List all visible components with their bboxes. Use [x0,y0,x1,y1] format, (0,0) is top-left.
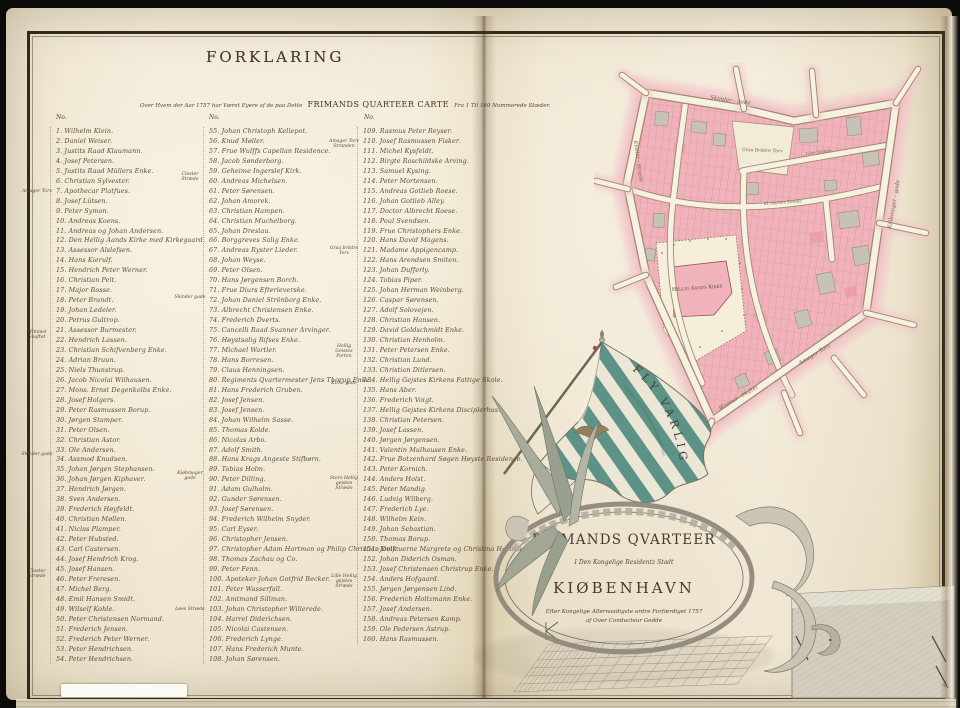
legend-entry: 85. Thomas Kolde. [209,426,361,436]
legend-entry: 59. Geheime Ingerslef Kirk. [209,167,361,177]
legend-entry: 24. Adrian Bruun. [56,356,206,366]
legend-entry: 10. Andreas Koens. [56,217,206,227]
legend-entry: 81. Hans Frederich Gruben. [209,386,361,396]
legend-entry: 82. Josef Jensen. [209,396,361,406]
legend-entry: 106. Frederich Lynge. [209,635,361,645]
legend-entry: 40. Christian Møllen. [56,515,206,525]
legend-entry: 58. Jacob Sønderborg. [209,157,361,167]
page-title: FORKLARING [206,48,386,66]
ground-shadow [474,628,774,684]
street-group-label: Kirke gade [328,381,360,386]
legend-entry: 94. Frederich Wilhelm Snyder. [209,515,361,525]
stone-pedestal [792,586,954,698]
legend-entry: 66. Borggreves Salig Enke. [209,236,361,246]
legend-entry: 16. Christian Pelt. [56,276,206,286]
column3-number-header: No. [364,114,375,121]
legend-entry: 13. Assessor Alslefsen. [56,246,206,256]
legend-column-1: 1. Wilhelm Klein.2. Daniel Weiser.3. Jus… [50,127,206,664]
legend-entry: 45. Josef Hansen. [56,565,206,575]
legend-entry: 71. Frue Diurs Efterleverske. [209,286,361,296]
legend-entry: 69. Peter Olsen. [209,266,361,276]
cartouche-subtitle-3: af Over Conducteur Gedde [586,618,663,624]
legend-entry: 75. Cancelli Raad Svanner Arvinger. [209,326,361,336]
legend-entry: 52. Frederich Peter Werner. [56,635,206,645]
legend-entry: 23. Christian Schifvenberg Enke. [56,346,206,356]
legend-entry: 28. Josef Holgers. [56,396,206,406]
legend-entry: 86. Nicolas Arbo. [209,436,361,446]
legend-entry: 104. Harrel Diderichsen. [209,615,361,625]
subtitle-line: Over Hvem der Aar 1757 har Været Eyere a… [140,92,486,111]
legend-entry: 73. Albrecht Christensen Enke. [209,306,361,316]
legend-entry: 4. Josef Petersen. [56,157,206,167]
legend-entry: 15. Hendrich Peter Werner. [56,266,206,276]
street-group-label: Kiøbmager gade [174,471,206,481]
legend-entry: 102. Amtmand Sillman. [209,595,361,605]
legend-entry: 31. Peter Olsen. [56,426,206,436]
legend-entry: 1. Wilhelm Klein. [56,127,206,137]
legend-entry: 83. Josef Jensen. [209,406,361,416]
legend-entry: 65. Johan Dreslau. [209,227,361,237]
legend-entry: 20. Petrus Gultrop. [56,316,206,326]
legend-entry: 43. Carl Castersen. [56,545,206,555]
legend-entry: 84. Johan Wilhelm Sasse. [209,416,361,426]
city-name: KIØBENHAVN [553,579,695,597]
legend-entry: 3. Justits Raad Klaumann. [56,147,206,157]
cartouche-subtitle-2: Efter Kongelige Allernaadigste ordre For… [545,609,703,615]
legend-entry: 42. Peter Hubsted. [56,535,206,545]
legend-entry: 30. Jørgen Stamper. [56,416,206,426]
legend-entry: 11. Andreas og Johan Andersen. [56,227,206,237]
legend-entry: 39. Frederich Høyfeldt. [56,505,206,515]
street-group-label: Hellig Geistes Porten [328,344,360,360]
page-gutter-fold [472,16,496,708]
legend-entry: 38. Sven Andersen. [56,495,206,505]
legend-entry: 108. Johan Sørensen. [209,655,361,665]
legend-entry: 64. Christian Muchelborg. [209,217,361,227]
legend-entry: 88. Hans Krags Angeste Stifbørn. [209,455,361,465]
legend-entry: 68. Johan Weyse. [209,256,361,266]
legend-entry: 107. Hans Frederich Munte. [209,645,361,655]
legend-entry: 12. Den Hellig Aands Kirke med Kirkegaar… [56,236,206,246]
legend-entry: 60. Andreas Michelsen. [209,177,361,187]
legend-entry: 51. Frederich Jensen. [56,625,206,635]
legend-entry: 72. Johan Daniel Strönborg Enke. [209,296,361,306]
legend-entry: 105. Nicolai Castensen. [209,625,361,635]
legend-entry: 54. Peter Hendrichsen. [56,655,206,665]
legend-entry: 50. Peter Christensen Normand. [56,615,206,625]
legend-entry: 96. Christopher Jensen. [209,535,361,545]
street-group-label: Lille Hellig gejstes Stræde [328,574,360,590]
legend-entry: 61. Peter Sørensen. [209,187,361,197]
legend-entry: 97. Christopher Adam Hartman og Philip C… [209,545,361,555]
red-tassel [593,346,597,350]
subtitle-script-2: Fra 1 Til 160 Nummerede Stæder. [454,103,550,109]
street-group-label: Store Hellig gejstes Stræde [328,476,360,492]
title-cartouche: FLY VARLIG FRIMANDS QVARTEER I Den Konge… [474,326,959,701]
legend-entry: 2. Daniel Weiser. [56,137,206,147]
legend-entry: 53. Peter Hendrichsen. [56,645,206,655]
legend-entry: 55. Johan Christoph Kellepot. [209,127,361,137]
street-group-label: Closter Stræde [174,172,206,182]
column2-number-header: No. [209,114,220,121]
cartouche-subtitle-1: I Den Kongelige Residentz Stadt [574,559,674,566]
legend-entry: 95. Carl Eyser. [209,525,361,535]
street-group-label: Graa brödre Torv [328,246,360,256]
legend-entry: 37. Hendrich Jørgen. [56,485,206,495]
column1-number-header: No. [56,114,67,121]
street-group-label: Amager Torv Stranden [328,139,360,149]
legend-entry: 7. Apothecar Platfues. [56,187,206,197]
legend-entry: 98. Thomas Zachau og Co. [209,555,361,565]
archive-label-sticker [61,684,187,697]
legend-entry: 74. Frederich Dverts. [209,316,361,326]
legend-entry: 46. Peter Freresen. [56,575,206,585]
legend-entry: 9. Peter Symon. [56,207,206,217]
legend-entry: 63. Christian Hampen. [209,207,361,217]
street-group-label: Skinder gade [21,452,53,457]
legend-entry: 103. Johan Christopher Willerede. [209,605,361,615]
legend-entry: 92. Gunder Sørensen. [209,495,361,505]
legend-entry: 32. Christian Astor. [56,436,206,446]
legend-entry: 22. Hendrich Lassen. [56,336,206,346]
page-edge-curl [940,16,958,708]
legend-entry: 27. Mons. Ernst Degenkolbs Enke. [56,386,206,396]
legend-entry: 19. Johan Ledeler. [56,306,206,316]
legend-entry: 8. Josef Lütsen. [56,197,206,207]
street-group-label: Amager Torv [21,189,53,194]
legend-entry: 87. Adolf Smith. [209,446,361,456]
street-group-label: Closter Stræde [21,569,53,579]
subtitle-script-1: Over Hvem der Aar 1757 har Været Eyere a… [140,103,302,109]
atlas-page-spread: FORKLARING Over Hvem der Aar 1757 har Væ… [6,8,952,700]
legend-entry: 93. Josef Sørensen. [209,505,361,515]
legend-entry: 70. Hans Jørgensen Borch. [209,276,361,286]
legend-entry: 62. Johan Amorek. [209,197,361,207]
pencil-corner-mark: 4 [942,680,947,689]
street-group-label: Løve Stræde [174,607,206,612]
legend-entry: 34. Assmod Knudsen. [56,455,206,465]
legend-entry: 26. Jacob Nicolai Wilhausen. [56,376,206,386]
legend-entry: 44. Josef Hendrich Krog. [56,555,206,565]
legend-entry: 33. Ole Andersen. [56,446,206,456]
legend-entry: 14. Hans Kierulf. [56,256,206,266]
legend-entry: 41. Niclas Plamper. [56,525,206,535]
stacked-page-edges [16,699,956,708]
legend-entry: 48. Emil Hansen Smidt. [56,595,206,605]
legend-entry: 21. Assessor Burmester. [56,326,206,336]
legend-entry: 29. Peter Rasmussen Borup. [56,406,206,416]
street-group-label: Wimmel Skaftet [21,330,53,340]
street-group-label: Skinder gade [174,295,206,300]
legend-entry: 89. Tobias Holm. [209,465,361,475]
legend-entry: 47. Michel Berg. [56,585,206,595]
subtitle-caps: FRIMANDS QUARTEER CARTE [307,99,449,109]
legend-entry: 79. Claus Henningsen. [209,366,361,376]
legend-entry: 25. Niels Thunstrup. [56,366,206,376]
